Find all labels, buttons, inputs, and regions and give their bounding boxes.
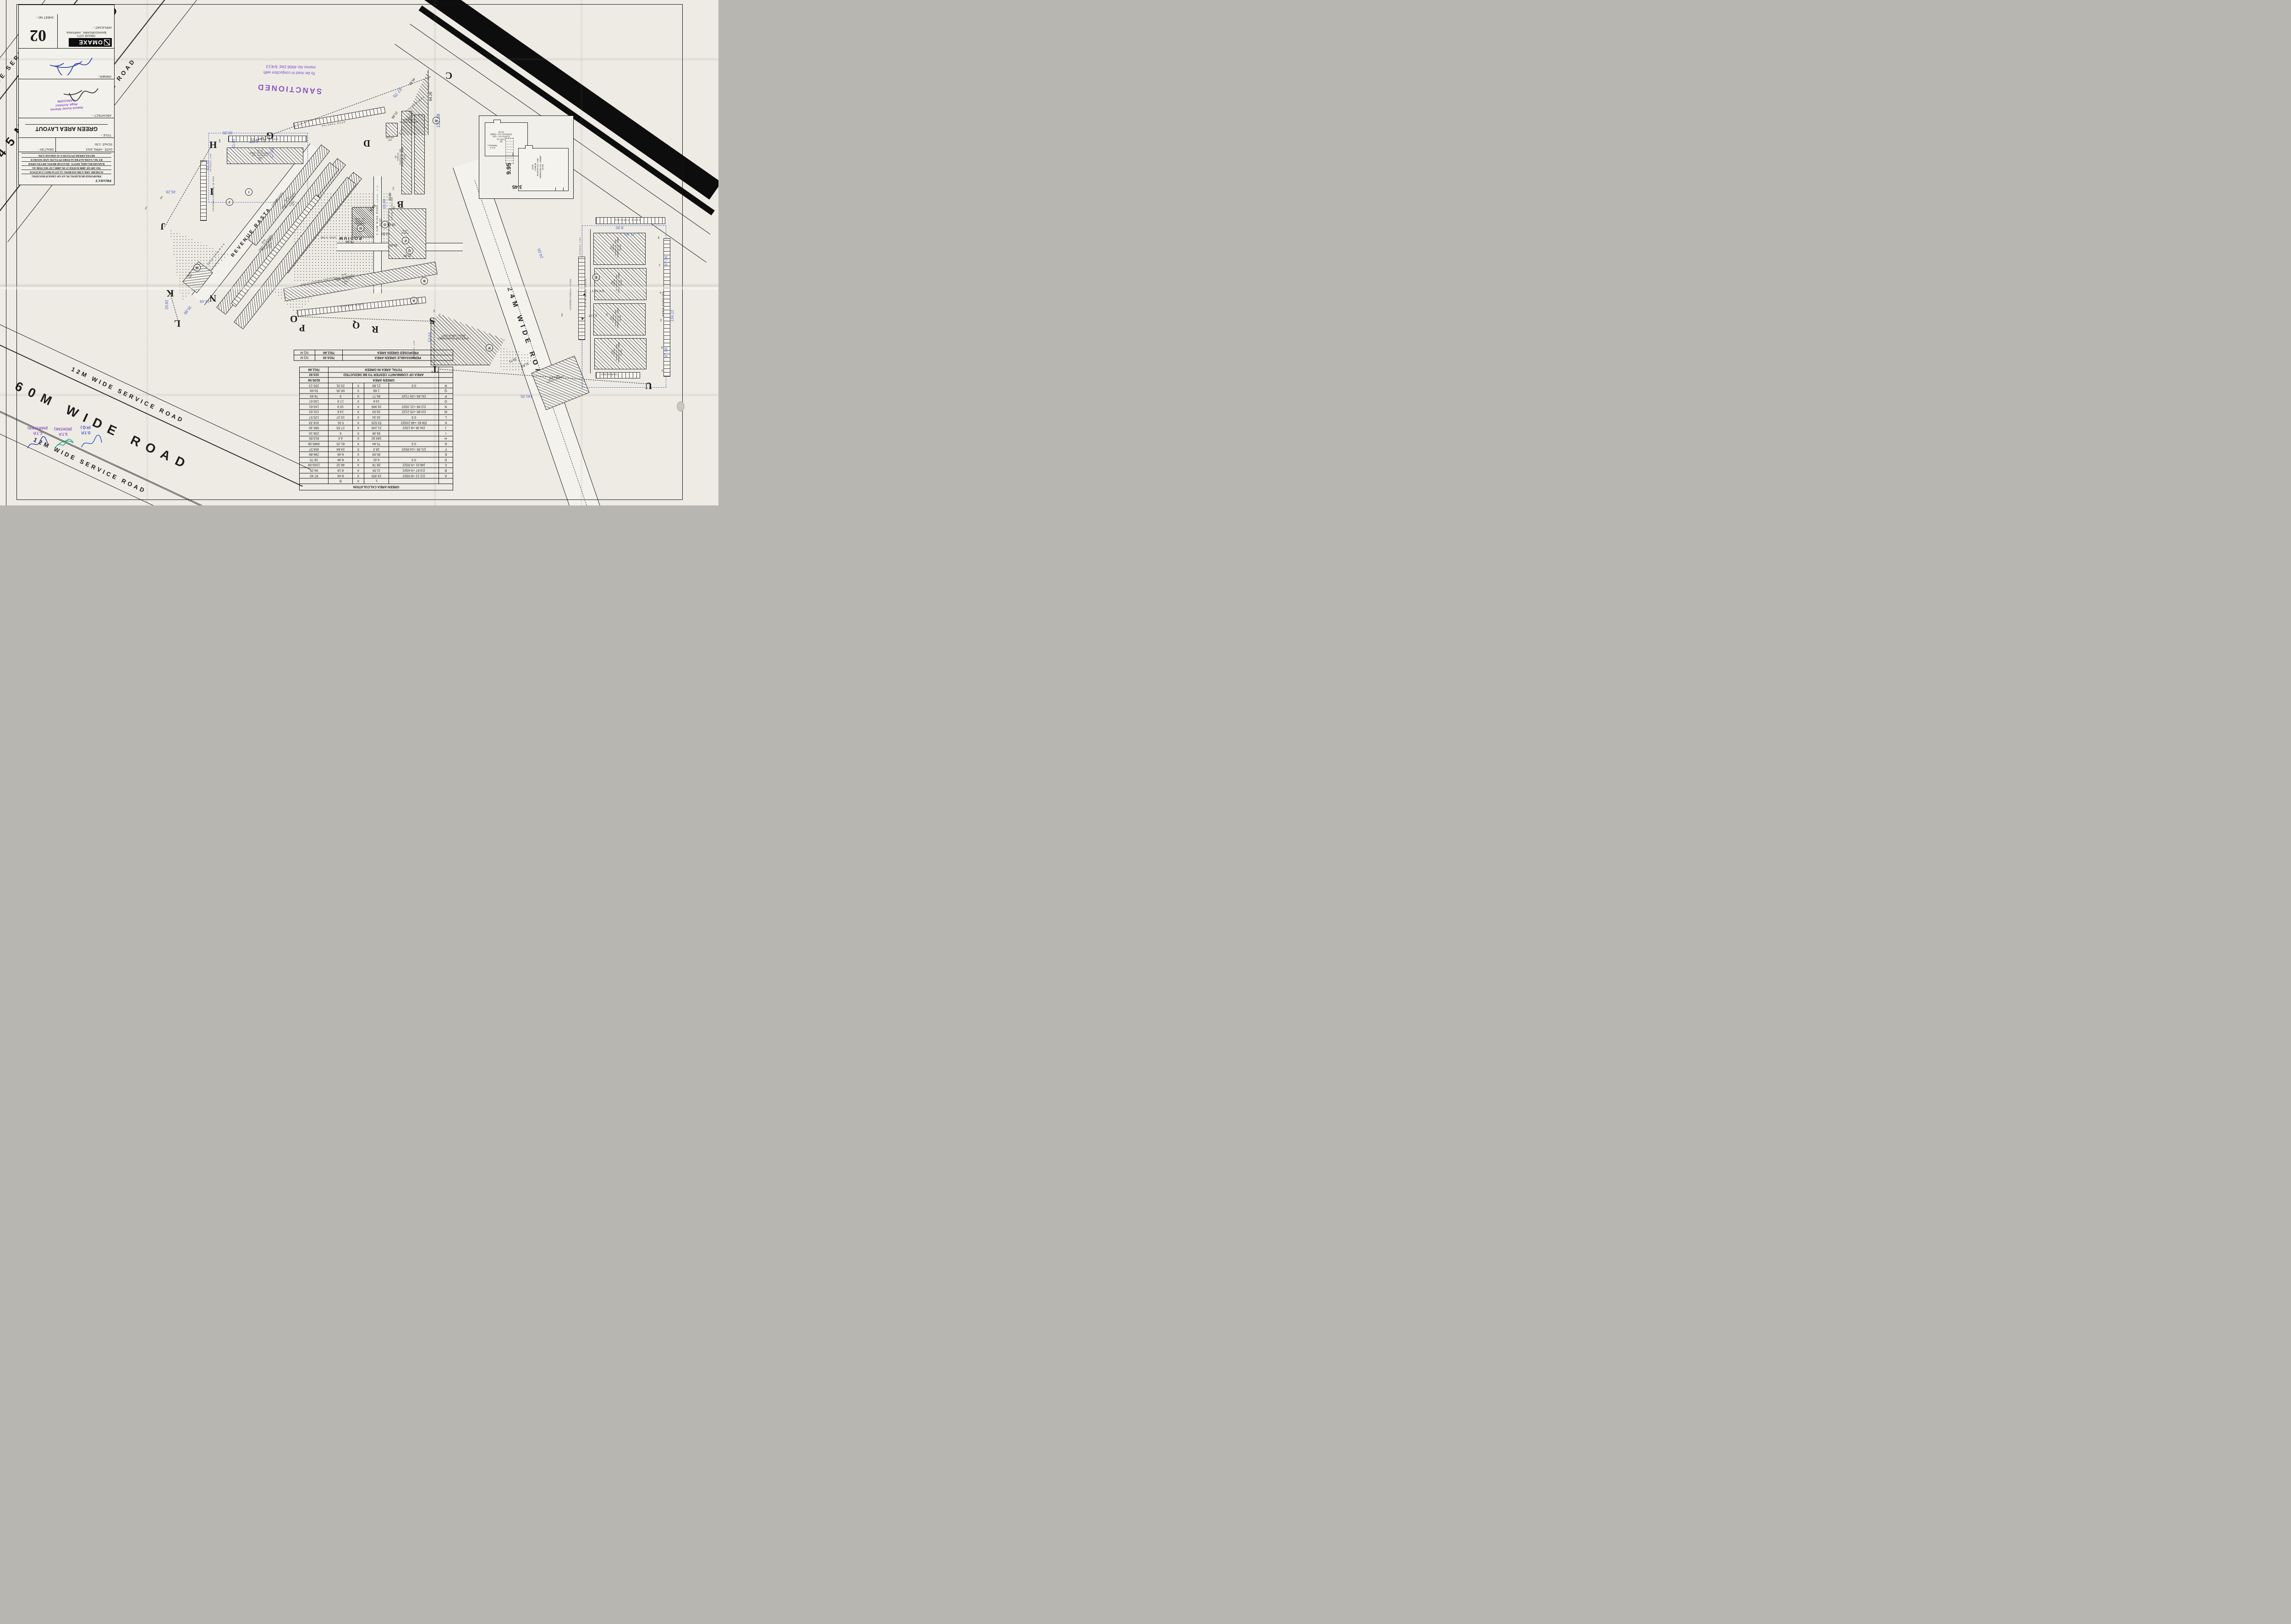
title-block: PROJECT PROPOSED BUILDING PLAN OF GROUP … [18,5,115,185]
punch-hole [677,401,685,411]
omaxe-logo-icon [104,39,110,45]
owner-label: OWNER:- [22,75,111,78]
calc-table-row: I 39.36 X 6 236.16 [300,431,453,436]
calc-table-row: K (58.82 +48.233)/2 53.525 X 5.91 316.33 [300,420,453,426]
calc-table-summary: GREEN AREA 8235.58 AREA OF COMMUNITY CEN… [300,367,453,383]
calc-table-row: L 0.5 16.34 X 15.37 125.57 [300,415,453,420]
drawing-sheet: 12M WIDE SERVICE ROAD 45M WIDE ROAD 12M … [0,0,718,505]
scale-value: -1:50 [95,143,102,146]
architect-label: ARCHITECT :- [22,114,111,117]
sheet-title: GREEN AREA LAYOUT [25,124,108,132]
omaxe-logo-text: OMAXE [78,39,103,46]
summary-table-row: PERMISSABLE GREEN AREA 7610.30 SQ.M [294,355,453,361]
calc-table-row: A (12.12 +8.59)/2 10.355 X 8.44 87.40 [300,473,453,479]
green-area-calc-table: GREEN AREA CALCULATION L X B A (12.12 +8… [299,367,453,490]
green-area-tables: GREEN AREA CALCULATION L X B A (12.12 +8… [294,350,453,490]
brand-place: BAHADURGARH , HARYANA. [60,31,112,34]
calc-table-row: Q 1.68 X 60.35 50.69 [300,388,453,394]
calc-table-title: GREEN AREA CALCULATION [300,484,453,490]
project-label: PROJECT [22,179,111,183]
memo-note: To be read in conjuction with memo No 49… [263,64,316,76]
omaxe-logo: OMAXE [69,38,112,47]
stp-stamp: S.T.P. (ROHTAK) [54,426,72,436]
calc-table-row: P (31.83 +29.71)/2 30.77 X 5 76.93 [300,394,453,399]
green-area-summary-table: PERMISSABLE GREEN AREA 7610.30 SQ.M PROP… [294,350,453,361]
date-label: DATE [104,148,112,151]
calc-table-row: M (10.85 +25.21)/2 18.03 X 14.6 131.62 [300,409,453,415]
calc-table-rows: A (12.12 +8.59)/2 10.355 X 8.44 87.40 B … [300,383,453,478]
sheet-no-label: SHEET NO :- [36,16,54,19]
calc-summary-row: GREEN AREA 8235.58 [300,378,453,383]
calc-table-row: C (48.01 +9.55)/2 28.78 X 46.32 1333.09 [300,462,453,468]
calc-table-row: G 0.5 75.94 X 81.25 3085.06 [300,441,453,447]
brand-city: OMAXE CITY, [60,34,112,37]
owner-signature [45,54,96,75]
dealt-by-label: DEALT BY - [19,138,55,152]
calc-table-row: F (21.95 +14.65)/2 18.3 X 24.84 454.57 [300,447,453,452]
calc-table-row: B (13.67 +9.43)/2 11.55 X 8.16 94.25 [300,468,453,473]
calc-table-row: O 14.6 X 17.9 130.67 [300,399,453,404]
date-value: - APRIL 2013 [86,148,104,151]
title-label: TITLE :- [22,133,111,137]
calc-table-row: D 0.5 4.42 X 8.46 18.70 [300,457,453,463]
calc-table-row: H 184.92 X 4.4 813.65 [300,436,453,441]
calc-summary-row: AREA OF COMMUNITY CENTER TO BE DEDUCTED … [300,372,453,378]
ctp-stamp: C.T.P. (HARYANA) [27,425,48,435]
scale-label: SCALE [103,143,112,146]
dtp-stamp: D.T.P. (H.Q.) [81,425,91,435]
project-text: PROPOSED BUILDING PLAN OF GROUP HOUSINGS… [22,153,111,178]
sheet-number: 02 [19,26,57,45]
sheet-outer-line [6,0,6,505]
summary-table-row: PROPOSED GREEN AREA 7911.66 SQ.M [294,350,453,356]
calc-table-row: R 0.5 21.89 X 23.31 255.13 [300,383,453,388]
calc-summary-row: TOTAL AREA IN GREEN 7911.66 [300,367,453,373]
calc-table-row: J (34.36 +8.13)/2 21.245 X 27.55 585.30 [300,425,453,431]
calc-table-row: E 35.09 X 8.46 296.86 [300,452,453,457]
calc-table-row: N (12.66 +21.33)/2 16.995 X 16.9 143.61 [300,404,453,410]
applicant-label: APPLICANT :- [60,26,112,29]
